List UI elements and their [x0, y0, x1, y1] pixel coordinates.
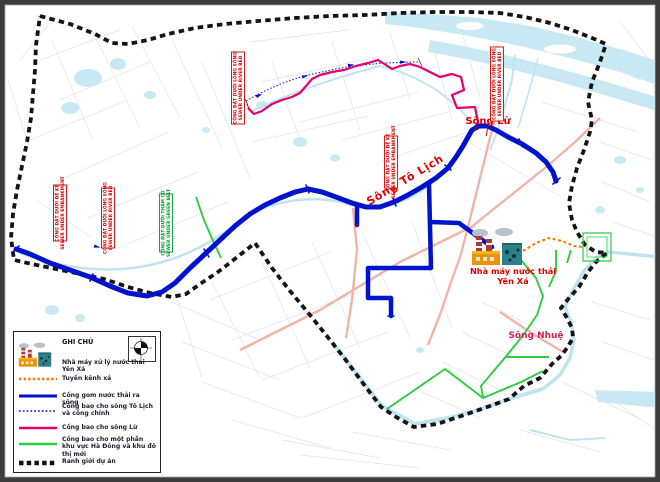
legend-item-lu: Cống bao cho sông Lừ	[62, 424, 157, 431]
svg-text:SEWER UNDER GREEN BELT: SEWER UNDER GREEN BELT	[166, 189, 172, 257]
song-lu-label: Sông Lừ	[465, 115, 511, 127]
svg-text:SEWER UNDER RIVER BED: SEWER UNDER RIVER BED	[108, 185, 114, 250]
plant-label-line1: Nhà máy nước thải	[470, 266, 556, 276]
legend-sample-to-lich	[18, 407, 58, 415]
annotation-box: CỐNG ĐẶT DƯỚI THẢM CỎ SEWER UNDER GREEN …	[159, 189, 173, 257]
legend-item-to-lich: Cống bao cho sông Tô Lịch và cống chính	[62, 403, 157, 418]
svg-text:SEWER UNDER RIVER BED: SEWER UNDER RIVER BED	[238, 55, 244, 120]
annotation-box: CỐNG ĐẶT DƯỚI LÒNG SÔNG SEWER UNDER RIVE…	[231, 52, 245, 124]
legend-sample-lu	[18, 424, 58, 432]
legend-sample-boundary	[18, 459, 58, 467]
plant-label-line2: Yên Xá	[496, 276, 528, 286]
legend-item-boundary: Ranh giới dự án	[62, 458, 157, 465]
legend-sample-main-sewer	[18, 392, 58, 400]
annotation-box: CỐNG ĐẶT DƯỚI ĐÊ KÈ SEWER UNDER EMBANKME…	[53, 176, 67, 250]
map-window: Sông Tô Lịch Sông Lừ Sông Nhuệ Nhà máy n…	[0, 0, 660, 482]
annotation-box: CỐNG ĐẶT DƯỚI LÒNG SÔNG SEWER UNDER RIVE…	[490, 47, 504, 121]
annotation-box: CỐNG ĐẶT DƯỚI ĐÊ KÈ SEWER UNDER EMBANKME…	[384, 125, 398, 199]
legend-item-green: Cống bao cho một phần khu vực Hà Đông và…	[62, 436, 157, 458]
svg-text:SEWER UNDER EMBANKMENT: SEWER UNDER EMBANKMENT	[60, 176, 66, 250]
legend: GHI CHÚ Nhà máy xử lý nước thải Yên Xá T…	[13, 331, 161, 473]
song-nhue-label: Sông Nhuệ	[508, 330, 563, 341]
legend-title: GHI CHÚ	[62, 338, 93, 346]
legend-item-plant: Nhà máy xử lý nước thải Yên Xá	[62, 359, 157, 374]
legend-factory-icon	[17, 342, 53, 368]
legend-item-discharge: Tuyến kênh xả	[62, 375, 157, 382]
svg-text:SEWER UNDER RIVER BED: SEWER UNDER RIVER BED	[497, 51, 503, 116]
svg-text:SEWER UNDER EMBANKMENT: SEWER UNDER EMBANKMENT	[391, 125, 397, 199]
legend-sample-green	[18, 440, 58, 448]
legend-sample-discharge	[18, 375, 58, 383]
annotation-box: CỐNG ĐẶT DƯỚI LÒNG SÔNG SEWER UNDER RIVE…	[101, 182, 115, 254]
